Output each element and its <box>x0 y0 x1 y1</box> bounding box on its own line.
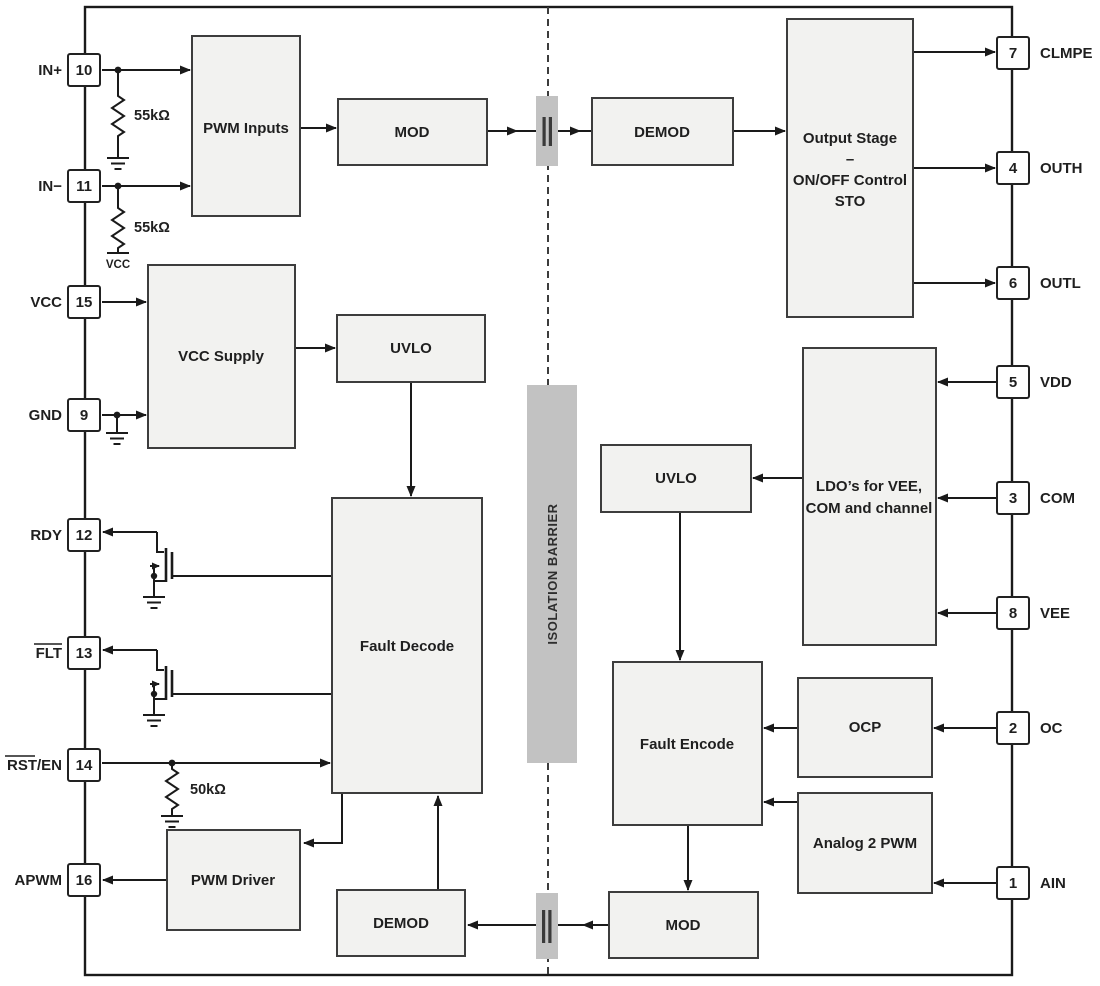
resistor-value: 55kΩ <box>134 220 170 236</box>
block-fault-encode: Fault Encode <box>613 662 762 825</box>
pin-label: CLMPE <box>1040 45 1093 62</box>
block-pwm-driver: PWM Driver <box>167 830 300 930</box>
ground-symbol <box>143 597 165 608</box>
pin-in-minus: 11 IN− <box>38 170 100 202</box>
block-label: PWM Inputs <box>203 120 289 137</box>
block-label: MOD <box>395 124 430 141</box>
pin-apwm: 16 APWM <box>15 864 101 896</box>
block-output-stage: Output Stage – ON/OFF Control STO <box>787 19 913 317</box>
block-label: Analog 2 PWM <box>813 835 917 852</box>
rail-label: VCC <box>106 259 130 271</box>
pin-number: 12 <box>76 527 93 544</box>
pin-label: OC <box>1040 720 1063 737</box>
pin-outh: 4 OUTH <box>997 152 1083 184</box>
isolation-capacitor-bottom <box>536 893 558 959</box>
pin-vdd: 5 VDD <box>997 366 1072 398</box>
gnd-pin-ground <box>106 412 128 444</box>
block-mod-bottom: MOD <box>609 892 758 958</box>
ground-symbol <box>107 158 129 169</box>
block-ldo: LDO’s for VEE, COM and channel <box>803 348 936 645</box>
pin-label: VCC <box>30 294 62 311</box>
pin-label: APWM <box>15 872 63 889</box>
open-drain-mosfet-rdy <box>143 532 172 608</box>
block-label-line1: Output Stage <box>803 130 897 147</box>
block-fault-decode: Fault Decode <box>332 498 482 793</box>
pin-oc: 2 OC <box>997 712 1063 744</box>
vcc-rail-symbol: VCC <box>106 253 130 271</box>
junction-dot <box>115 183 122 190</box>
resistor-value: 55kΩ <box>134 108 170 124</box>
junction-dot <box>151 573 157 579</box>
block-analog-2-pwm: Analog 2 PWM <box>798 793 932 893</box>
pin-clmpe: 7 CLMPE <box>997 37 1093 69</box>
pin-number: 1 <box>1009 875 1017 892</box>
pin-vee: 8 VEE <box>997 597 1070 629</box>
block-demod-top: DEMOD <box>592 98 733 165</box>
block-label-line2: – <box>846 151 854 168</box>
block-label: Fault Encode <box>640 736 734 753</box>
pin-outl: 6 OUTL <box>997 267 1081 299</box>
block-pwm-inputs: PWM Inputs <box>192 36 300 216</box>
ground-symbol <box>161 816 183 827</box>
pin-number: 16 <box>76 872 93 889</box>
pin-label: VEE <box>1040 605 1070 622</box>
resistor-inp-55k: 55kΩ <box>107 67 170 169</box>
pin-number: 15 <box>76 294 93 311</box>
pin-label: VDD <box>1040 374 1072 391</box>
wire-faultdecode-to-pwmdriver <box>304 793 342 843</box>
pin-com: 3 COM <box>997 482 1075 514</box>
pin-number: 6 <box>1009 275 1017 292</box>
block-label: PWM Driver <box>191 872 275 889</box>
ground-symbol <box>143 715 165 726</box>
junction-dot <box>169 760 176 767</box>
block-label: MOD <box>666 917 701 934</box>
block-vcc-supply: VCC Supply <box>148 265 295 448</box>
block-uvlo-right: UVLO <box>601 445 751 512</box>
isolation-barrier: ISOLATION BARRIER <box>527 385 577 763</box>
pin-label: IN− <box>38 178 62 195</box>
pin-number: 10 <box>76 62 93 79</box>
block-label: DEMOD <box>634 124 690 141</box>
pin-rdy: 12 RDY <box>30 519 100 551</box>
pin-number: 8 <box>1009 605 1017 622</box>
open-drain-mosfet-flt <box>143 650 172 726</box>
block-ocp: OCP <box>798 678 932 777</box>
pin-label: GND <box>29 407 63 424</box>
pin-number: 11 <box>76 178 92 195</box>
pin-ain: 1 AIN <box>997 867 1066 899</box>
pin-number: 5 <box>1009 374 1017 391</box>
pin-label: COM <box>1040 490 1075 507</box>
block-mod-top: MOD <box>338 99 487 165</box>
pin-number: 7 <box>1009 45 1017 62</box>
block-label: DEMOD <box>373 915 429 932</box>
pin-label: OUTL <box>1040 275 1081 292</box>
pin-number: 9 <box>80 407 88 424</box>
block-label-line4: STO <box>835 193 866 210</box>
junction-dot <box>114 412 121 419</box>
resistor-value: 50kΩ <box>190 782 226 798</box>
isolation-barrier-label: ISOLATION BARRIER <box>545 503 560 644</box>
resistor-rsten-50k: 50kΩ <box>161 760 226 827</box>
block-label-line3: ON/OFF Control <box>793 172 907 189</box>
pin-label: RDY <box>30 527 62 544</box>
junction-dot <box>151 691 157 697</box>
block-label: OCP <box>849 719 882 736</box>
pin-label: RST/EN <box>7 757 62 774</box>
junction-dot <box>115 67 122 74</box>
pin-number: 14 <box>76 757 93 774</box>
pin-vcc: 15 VCC <box>30 286 100 318</box>
pin-label: IN+ <box>38 62 62 79</box>
resistor-inn-55k: VCC 55kΩ <box>106 183 170 271</box>
pin-label: FLT <box>36 645 62 662</box>
pin-number: 3 <box>1009 490 1017 507</box>
block-label: UVLO <box>655 470 697 487</box>
pin-rst-en: 14 RST/EN <box>5 749 100 781</box>
pin-number: 13 <box>76 645 93 662</box>
pin-label: AIN <box>1040 875 1066 892</box>
block-label-line2: COM and channel <box>806 500 933 517</box>
isolation-capacitor-top <box>536 96 558 166</box>
pin-gnd: 9 GND <box>29 399 100 431</box>
block-label: UVLO <box>390 340 432 357</box>
pin-number: 4 <box>1009 160 1018 177</box>
block-label: Fault Decode <box>360 638 454 655</box>
pin-label: OUTH <box>1040 160 1083 177</box>
pin-number: 2 <box>1009 720 1017 737</box>
block-uvlo-left: UVLO <box>337 315 485 382</box>
pin-flt: 13 FLT <box>34 637 100 669</box>
block-label: VCC Supply <box>178 348 264 365</box>
block-demod-bottom: DEMOD <box>337 890 465 956</box>
pin-in-plus: 10 IN+ <box>38 54 100 86</box>
functional-block-diagram: 55kΩ VCC 55kΩ 50kΩ <box>0 0 1100 986</box>
block-label-line1: LDO’s for VEE, <box>816 478 922 495</box>
